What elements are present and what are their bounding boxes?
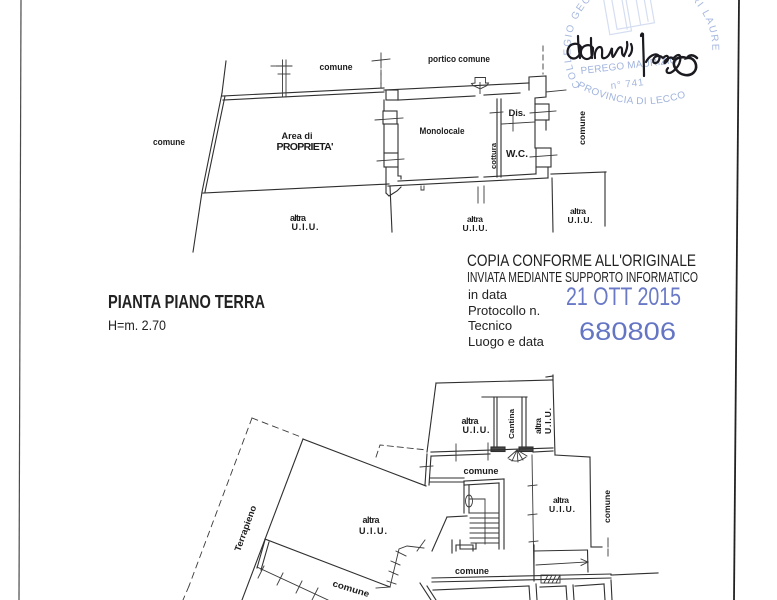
svg-text:H=m. 2.70: H=m. 2.70: [108, 317, 166, 333]
svg-text:comune: comune: [603, 489, 612, 523]
svg-text:comune: comune: [464, 466, 499, 476]
svg-text:comune: comune: [153, 137, 185, 148]
svg-text:Luogo e data: Luogo e data: [468, 334, 545, 349]
svg-text:U.I.U.: U.I.U.: [359, 526, 387, 536]
svg-text:portico comune: portico comune: [428, 54, 490, 64]
svg-text:680806: 680806: [579, 318, 676, 346]
svg-text:PIANTA PIANO TERRA: PIANTA PIANO TERRA: [108, 292, 265, 312]
svg-text:Protocollo n.: Protocollo n.: [468, 303, 540, 318]
svg-text:PROPRIETA': PROPRIETA': [277, 141, 334, 153]
svg-text:comune: comune: [577, 111, 587, 145]
svg-text:U.I.U.: U.I.U.: [543, 408, 553, 434]
svg-text:Cantina: Cantina: [507, 408, 516, 439]
svg-text:Dis.: Dis.: [509, 108, 526, 119]
svg-text:Tecnico: Tecnico: [468, 318, 512, 333]
svg-text:comune: comune: [320, 62, 353, 73]
svg-text:U.I.U.: U.I.U.: [549, 504, 575, 514]
svg-text:W.C.: W.C.: [506, 149, 528, 160]
svg-text:COPIA CONFORME ALL'ORIGINALE: COPIA CONFORME ALL'ORIGINALE: [467, 252, 696, 270]
svg-text:21 OTT 2015: 21 OTT 2015: [566, 283, 681, 311]
svg-text:U.I.U.: U.I.U.: [463, 425, 490, 435]
svg-text:cottura: cottura: [491, 143, 498, 169]
svg-text:U.I.U.: U.I.U.: [568, 215, 593, 225]
svg-text:U.I.U.: U.I.U.: [463, 223, 488, 233]
svg-text:altra: altra: [363, 515, 381, 525]
svg-text:comune: comune: [455, 566, 489, 576]
svg-text:altra: altra: [533, 418, 543, 434]
svg-text:Monolocale: Monolocale: [420, 126, 465, 137]
svg-text:in data: in data: [468, 287, 508, 302]
svg-text:U.I.U.: U.I.U.: [292, 222, 319, 232]
